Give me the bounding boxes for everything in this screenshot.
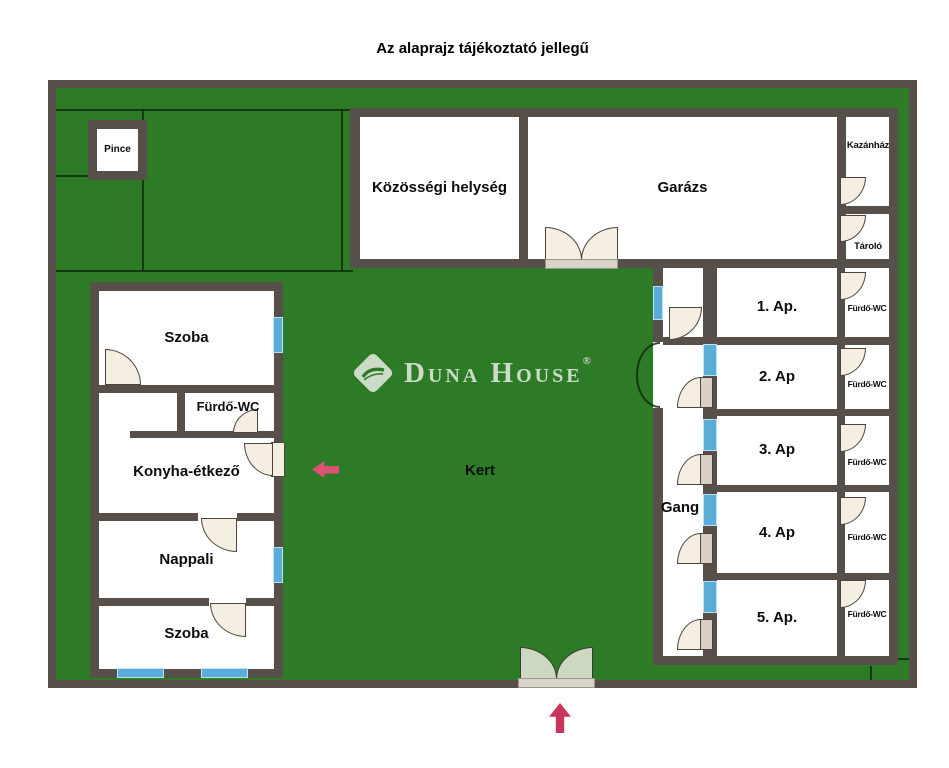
room-label-kozossegi: Közösségi helység	[360, 117, 519, 259]
wall	[653, 656, 898, 665]
window	[703, 581, 717, 613]
room-label-apartment-4: 4. Ap	[717, 493, 837, 572]
wall	[717, 409, 889, 416]
courtyard-line	[870, 666, 872, 682]
wall	[237, 513, 274, 521]
wave-glyph	[359, 359, 387, 387]
wall	[653, 408, 663, 656]
corridor-label-gang: Gang	[650, 499, 710, 517]
wall	[350, 259, 898, 268]
courtyard-line	[341, 109, 343, 270]
duna-house-logo-icon	[352, 351, 394, 393]
wall	[99, 385, 274, 393]
room-label-szoba-top: Szoba	[99, 291, 274, 385]
courtyard-line	[897, 658, 911, 660]
garden-label-kert: Kert	[440, 461, 520, 480]
garden-gate-threshold	[518, 678, 595, 688]
window	[653, 286, 663, 320]
window	[703, 344, 717, 376]
room-label-apartment-1: 1. Ap.	[717, 276, 837, 338]
courtyard-line	[56, 175, 89, 177]
brand-word-house: House	[491, 357, 583, 389]
room-label-konyha: Konyha-étkező	[99, 438, 274, 506]
room-label-furdo-wc-left: Fürdő-WC	[183, 399, 273, 415]
wall	[663, 337, 889, 345]
room-label-bath-1: Fürdő-WC	[844, 302, 890, 314]
room-label-tarolo: Tároló	[844, 240, 892, 254]
wall	[717, 485, 889, 492]
room-label-nappali: Nappali	[99, 521, 274, 598]
plan-disclaimer-title: Az alaprajz tájékoztató jellegű	[48, 40, 917, 57]
room-label-pince: Pince	[93, 129, 142, 171]
garage-door-threshold	[545, 259, 618, 269]
wall	[350, 108, 360, 268]
door-leaf	[700, 533, 713, 564]
door-leaf	[700, 454, 713, 485]
brand-name: Duna House®	[404, 355, 591, 390]
room-label-bath-5: Fürdő-WC	[844, 608, 890, 620]
wall	[350, 108, 898, 117]
wall	[717, 573, 889, 580]
courtyard-line	[56, 270, 353, 272]
brand-word-duna: Duna	[404, 357, 480, 389]
wall	[99, 598, 209, 606]
room-label-garazs: Garázs	[528, 117, 837, 259]
brand-watermark: Duna House®	[358, 355, 591, 390]
room-label-szoba-bottom: Szoba	[99, 606, 274, 662]
room-label-kazanhaz: Kazánház	[844, 139, 892, 153]
courtyard-line	[56, 109, 353, 111]
door-leaf	[700, 377, 713, 408]
window	[273, 317, 283, 353]
window	[703, 419, 717, 451]
wall	[889, 108, 898, 665]
room-label-apartment-2: 2. Ap	[717, 345, 837, 408]
wall	[846, 206, 889, 214]
wall	[519, 117, 528, 259]
entrance-arrow-up-icon	[549, 703, 571, 733]
door-leaf	[700, 619, 713, 650]
window	[273, 547, 283, 583]
floor-plan: Az alaprajz tájékoztató jellegű Duna Hou…	[0, 0, 949, 768]
room-label-apartment-3: 3. Ap	[717, 417, 837, 483]
room-label-bath-2: Fürdő-WC	[844, 378, 890, 390]
registered-mark: ®	[583, 355, 591, 367]
window	[117, 668, 164, 678]
wall	[99, 513, 198, 521]
room-label-apartment-5: 5. Ap.	[717, 581, 837, 655]
room-label-bath-4: Fürdő-WC	[844, 531, 890, 543]
wall	[246, 598, 274, 606]
room-label-bath-3: Fürdő-WC	[844, 456, 890, 468]
window	[201, 668, 248, 678]
